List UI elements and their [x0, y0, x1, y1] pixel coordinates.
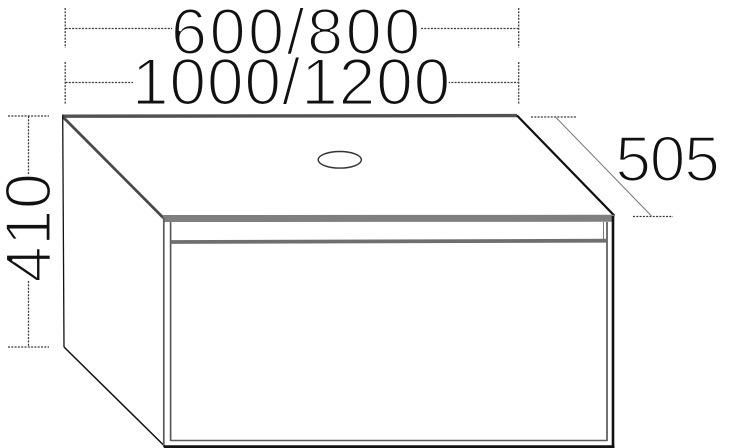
- svg-text:505: 505: [615, 123, 718, 195]
- svg-text:1000/1200: 1000/1200: [132, 44, 451, 118]
- svg-text:410: 410: [0, 173, 65, 283]
